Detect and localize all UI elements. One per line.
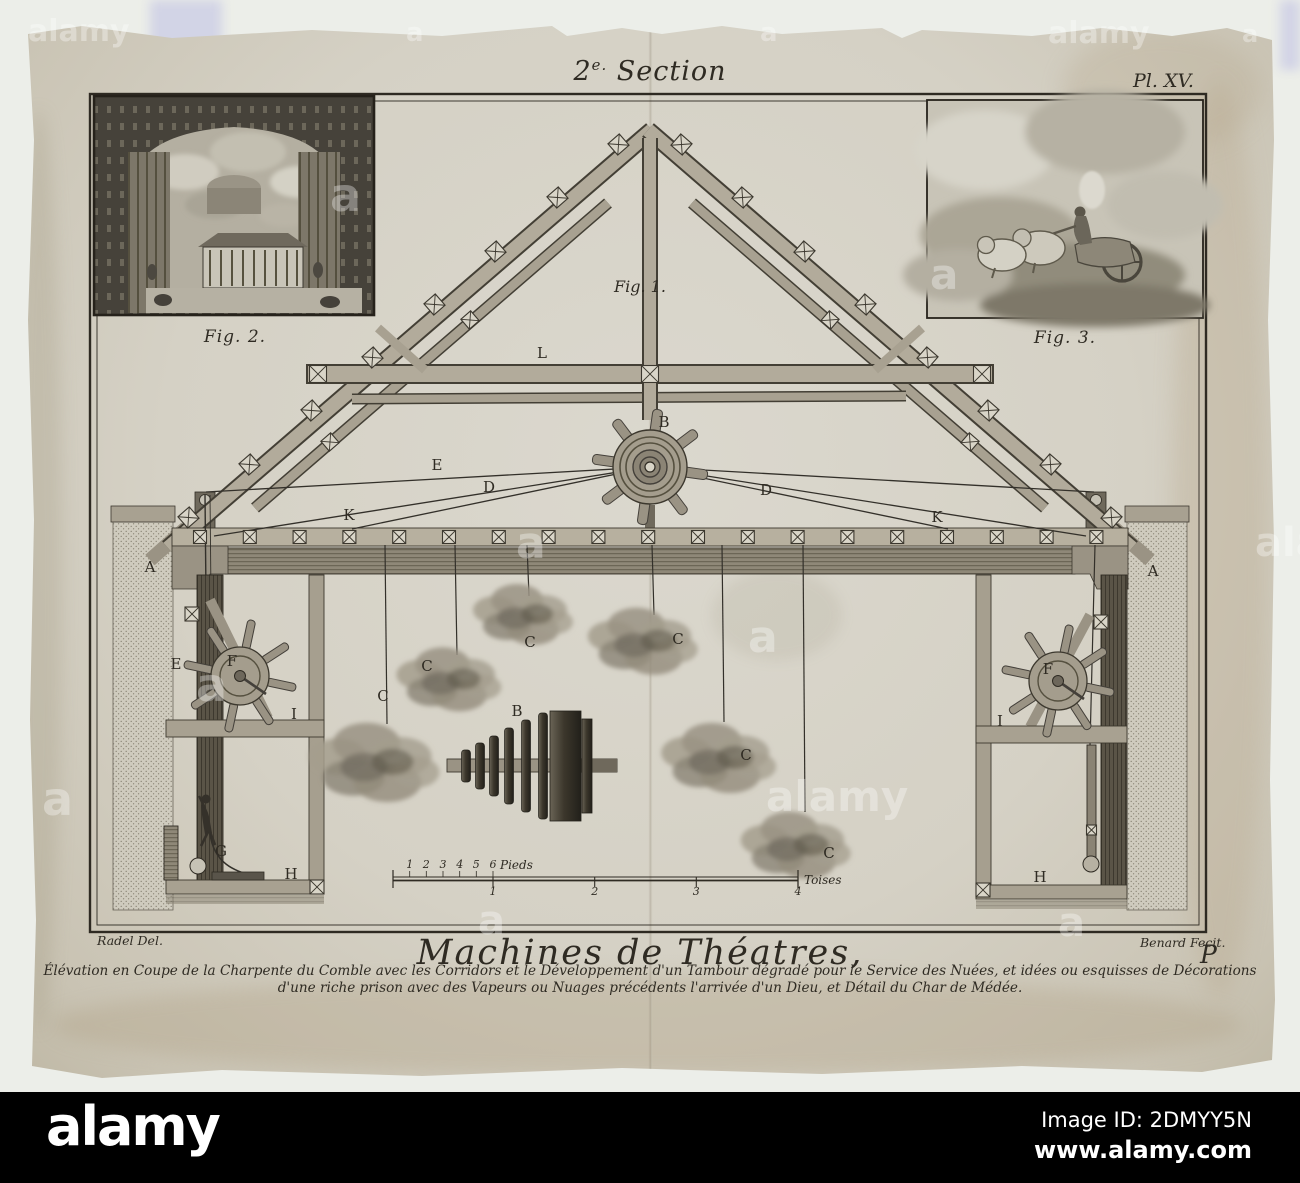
alamy-watermark-letter: a — [406, 18, 424, 48]
footer-bar: alamy Image ID: 2DMYY5N www.alamy.com — [0, 1092, 1300, 1183]
alamy-watermark-letter: a — [1242, 20, 1258, 48]
alamy-watermark: alamy — [766, 772, 908, 821]
alamy-watermark-letter: a — [1058, 900, 1085, 946]
alamy-watermark-letter: a — [196, 658, 227, 712]
alamy-watermark: alamy — [1048, 16, 1150, 51]
alamy-watermark-letter: a — [478, 898, 505, 944]
alamy-watermark-letter: a — [516, 518, 546, 569]
alamy-watermark: alamy — [1255, 520, 1300, 566]
stock-photo-page: 123456Pieds1234Toises AABBCCCCCCDDEEFFGH… — [0, 0, 1300, 1183]
image-id: Image ID: 2DMYY5N — [1041, 1108, 1252, 1132]
alamy-watermark-letter: a — [930, 250, 958, 299]
alamy-url: www.alamy.com — [1034, 1136, 1252, 1164]
watermark-layer: alamyalamyaaaaaaaaalamyalamyaaa — [0, 0, 1300, 1092]
alamy-watermark-letter: a — [748, 612, 778, 663]
alamy-watermark-letter: a — [330, 168, 361, 222]
alamy-watermark-letter: a — [42, 772, 73, 826]
alamy-logo: alamy — [46, 1095, 219, 1158]
alamy-watermark-letter: a — [760, 18, 778, 48]
alamy-watermark: alamy — [28, 14, 130, 49]
